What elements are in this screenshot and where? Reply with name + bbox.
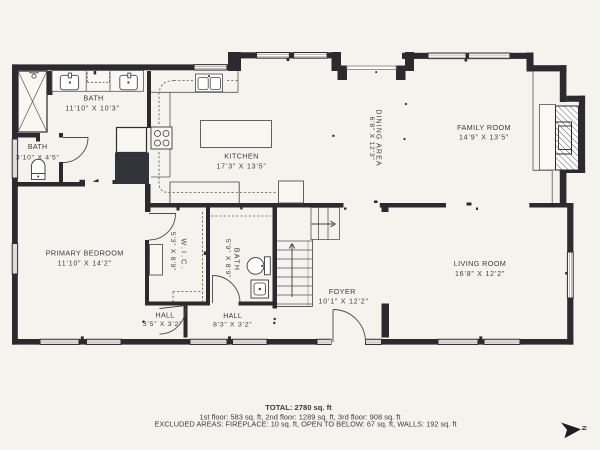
svg-text:5’3” X 8’9”: 5’3” X 8’9” (169, 232, 176, 271)
svg-text:14’9” X 13’5”: 14’9” X 13’5” (459, 135, 509, 142)
svg-text:11’10” X 14’2”: 11’10” X 14’2” (58, 261, 112, 268)
svg-text:HALL: HALL (223, 312, 242, 320)
svg-text:3’10” X 4’5”: 3’10” X 4’5” (16, 154, 60, 161)
svg-text:8’3” X 3’2”: 8’3” X 3’2” (213, 322, 252, 329)
svg-text:KITCHEN: KITCHEN (224, 152, 258, 161)
svg-text:HALL: HALL (156, 311, 175, 319)
svg-text:FAMILY ROOM: FAMILY ROOM (457, 123, 511, 132)
svg-text:11’10” X 10’3”: 11’10” X 10’3” (65, 106, 119, 113)
svg-text:PRIMARY BEDROOM: PRIMARY BEDROOM (46, 249, 124, 258)
svg-text:TOTAL: 2780 sq. ft: TOTAL: 2780 sq. ft (265, 403, 332, 412)
svg-text:BATH: BATH (233, 248, 241, 272)
svg-text:FOYER: FOYER (329, 287, 356, 296)
svg-text:BATH: BATH (83, 94, 103, 103)
svg-text:16’8” X 12’2”: 16’8” X 12’2” (455, 271, 505, 278)
svg-text:10’1” X 12’2”: 10’1” X 12’2” (319, 299, 369, 306)
svg-text:EXCLUDED AREAS: FIREPLACE: 10: EXCLUDED AREAS: FIREPLACE: 10 sq. ft, OP… (154, 420, 456, 429)
svg-text:6’8” X 12’3”: 6’8” X 12’3” (368, 117, 375, 161)
svg-text:5’9” X 8’9”: 5’9” X 8’9” (224, 239, 231, 278)
svg-text:N: N (580, 426, 587, 431)
svg-text:3’5” X 3’2”: 3’5” X 3’2” (143, 321, 182, 328)
svg-text:17’3” X 13’5”: 17’3” X 13’5” (216, 164, 266, 171)
svg-text:LIVING ROOM: LIVING ROOM (454, 259, 507, 268)
svg-text:W.I.C.: W.I.C. (180, 239, 188, 271)
svg-text:BATH: BATH (28, 143, 48, 151)
